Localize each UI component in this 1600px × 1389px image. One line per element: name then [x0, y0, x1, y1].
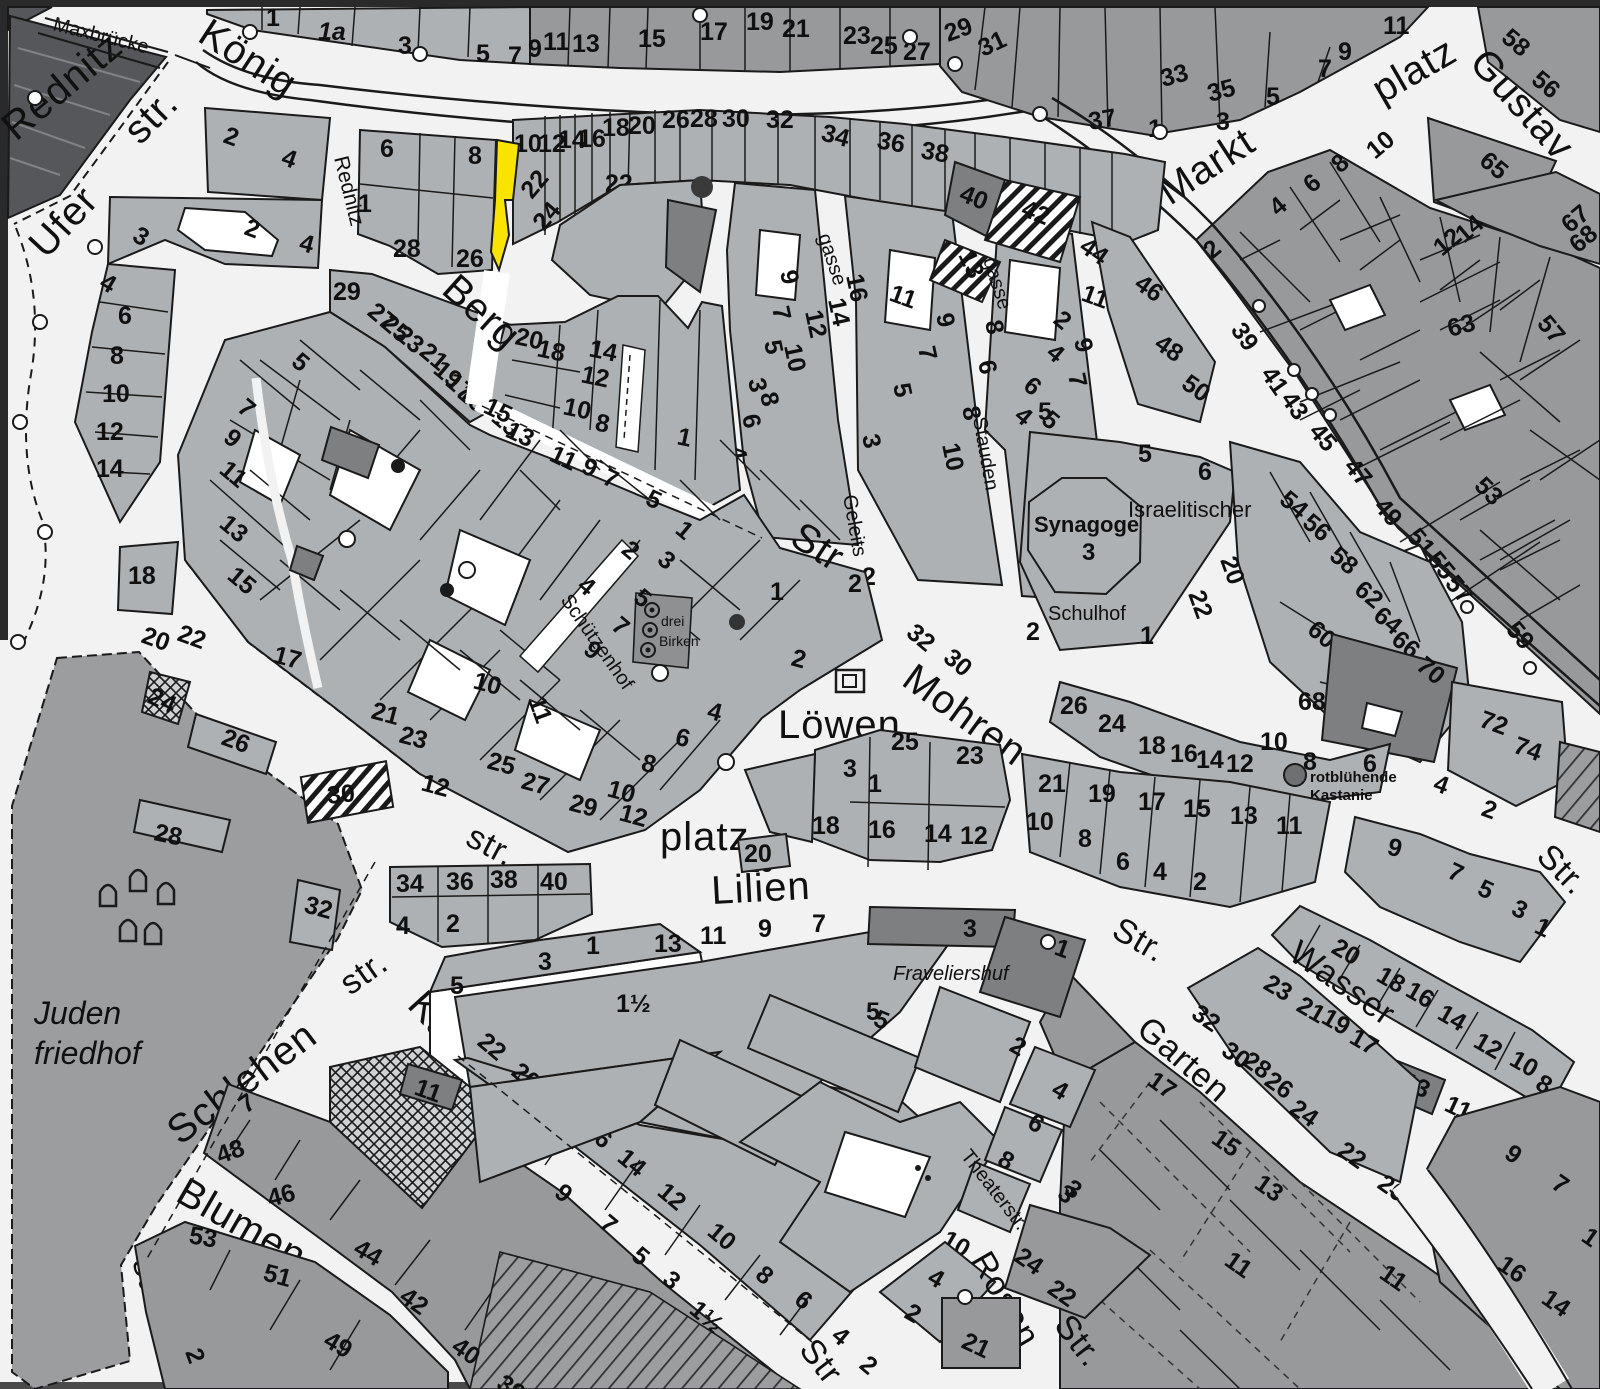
svg-text:10: 10: [778, 341, 811, 374]
svg-text:1: 1: [868, 770, 882, 798]
svg-text:20: 20: [628, 112, 656, 140]
svg-text:1½: 1½: [616, 990, 651, 1018]
svg-text:38: 38: [919, 136, 951, 168]
svg-text:6: 6: [118, 302, 132, 330]
svg-text:2: 2: [848, 570, 862, 598]
svg-text:15: 15: [1183, 795, 1211, 823]
svg-text:13: 13: [654, 930, 682, 958]
svg-text:24: 24: [1098, 710, 1126, 738]
svg-text:6: 6: [1116, 848, 1130, 876]
svg-text:6: 6: [1198, 458, 1212, 486]
svg-text:23: 23: [956, 742, 984, 770]
svg-text:34: 34: [396, 870, 424, 898]
svg-text:10: 10: [102, 380, 130, 408]
svg-text:3: 3: [538, 948, 552, 976]
svg-text:11: 11: [543, 28, 570, 56]
svg-text:8: 8: [468, 142, 482, 170]
svg-text:1a: 1a: [318, 18, 346, 46]
svg-text:36: 36: [875, 126, 907, 158]
svg-text:7: 7: [812, 910, 826, 938]
svg-text:3: 3: [843, 755, 857, 783]
svg-text:36: 36: [446, 868, 474, 896]
svg-text:14: 14: [1196, 746, 1224, 774]
svg-text:12: 12: [579, 360, 612, 393]
svg-text:1: 1: [770, 578, 784, 606]
svg-text:40: 40: [540, 868, 568, 896]
svg-text:30: 30: [326, 779, 357, 810]
svg-text:Birken: Birken: [659, 633, 699, 649]
svg-text:10: 10: [936, 440, 969, 473]
svg-text:drei: drei: [661, 613, 684, 629]
svg-text:9: 9: [528, 35, 542, 63]
svg-text:8: 8: [110, 342, 124, 370]
svg-text:21: 21: [782, 15, 810, 43]
svg-text:30: 30: [722, 105, 750, 133]
svg-text:friedhof: friedhof: [34, 1035, 144, 1071]
svg-text:28: 28: [393, 235, 421, 263]
svg-text:13: 13: [572, 30, 600, 58]
svg-text:12: 12: [1226, 750, 1254, 778]
svg-text:28: 28: [690, 105, 718, 133]
svg-text:19: 19: [746, 8, 774, 36]
svg-text:32: 32: [766, 106, 794, 134]
svg-text:38: 38: [490, 866, 518, 894]
svg-text:2: 2: [1193, 868, 1207, 896]
svg-text:12: 12: [96, 418, 124, 446]
svg-text:20: 20: [744, 840, 772, 868]
svg-text:14: 14: [96, 455, 124, 483]
svg-text:29: 29: [333, 278, 361, 306]
svg-text:26: 26: [662, 106, 690, 134]
svg-text:3: 3: [963, 915, 977, 943]
svg-text:4: 4: [396, 912, 410, 940]
svg-text:Schulhof: Schulhof: [1048, 603, 1126, 625]
svg-text:25: 25: [870, 32, 898, 60]
svg-text:5: 5: [476, 40, 490, 68]
svg-text:28: 28: [152, 818, 185, 851]
svg-text:18: 18: [602, 114, 630, 142]
svg-text:16: 16: [1170, 740, 1198, 768]
svg-text:53: 53: [187, 1221, 219, 1253]
svg-text:7: 7: [1318, 55, 1332, 83]
svg-text:6: 6: [380, 135, 394, 163]
svg-text:12: 12: [960, 822, 988, 850]
svg-text:19: 19: [1088, 780, 1116, 808]
svg-text:10: 10: [1026, 808, 1054, 836]
svg-text:Israelitischer: Israelitischer: [1128, 497, 1251, 522]
svg-text:17: 17: [1138, 788, 1166, 816]
svg-text:10: 10: [1260, 728, 1288, 756]
svg-text:3: 3: [1082, 539, 1095, 566]
svg-text:rotblühende: rotblühende: [1310, 769, 1397, 786]
svg-text:Juden: Juden: [33, 995, 121, 1031]
svg-text:18: 18: [1138, 732, 1166, 760]
svg-text:1: 1: [1140, 622, 1154, 650]
svg-text:23: 23: [843, 22, 871, 50]
svg-text:1: 1: [266, 4, 280, 32]
svg-text:26: 26: [1060, 692, 1088, 720]
svg-text:17: 17: [700, 18, 728, 46]
svg-text:Synagoge: Synagoge: [1034, 512, 1139, 537]
svg-text:3: 3: [398, 32, 412, 60]
svg-text:18: 18: [812, 812, 840, 840]
svg-text:8: 8: [1078, 825, 1092, 853]
svg-text:5: 5: [1266, 83, 1280, 111]
svg-text:21: 21: [1038, 770, 1066, 798]
svg-text:7: 7: [508, 42, 522, 70]
svg-text:18: 18: [535, 334, 568, 367]
svg-text:18: 18: [128, 562, 156, 590]
svg-text:25: 25: [891, 728, 919, 756]
svg-text:15: 15: [638, 25, 666, 53]
svg-text:Fraveliershuf: Fraveliershuf: [893, 963, 1011, 985]
svg-text:16: 16: [868, 816, 896, 844]
svg-text:11: 11: [1276, 812, 1303, 840]
svg-text:10: 10: [561, 392, 594, 425]
svg-text:9: 9: [758, 915, 772, 943]
svg-text:platz: platz: [660, 815, 750, 859]
svg-text:68: 68: [1298, 688, 1326, 716]
svg-text:1: 1: [586, 932, 600, 960]
svg-text:11: 11: [1383, 12, 1410, 40]
svg-text:11: 11: [700, 922, 727, 950]
svg-text:9: 9: [1338, 38, 1352, 66]
svg-text:14: 14: [924, 820, 952, 848]
svg-text:13: 13: [1230, 802, 1258, 830]
svg-text:4: 4: [1153, 858, 1167, 886]
svg-text:2: 2: [446, 910, 460, 938]
svg-text:5: 5: [450, 972, 464, 1000]
svg-text:5: 5: [1038, 398, 1052, 426]
svg-text:5: 5: [1138, 440, 1152, 468]
svg-text:2: 2: [1026, 618, 1040, 646]
